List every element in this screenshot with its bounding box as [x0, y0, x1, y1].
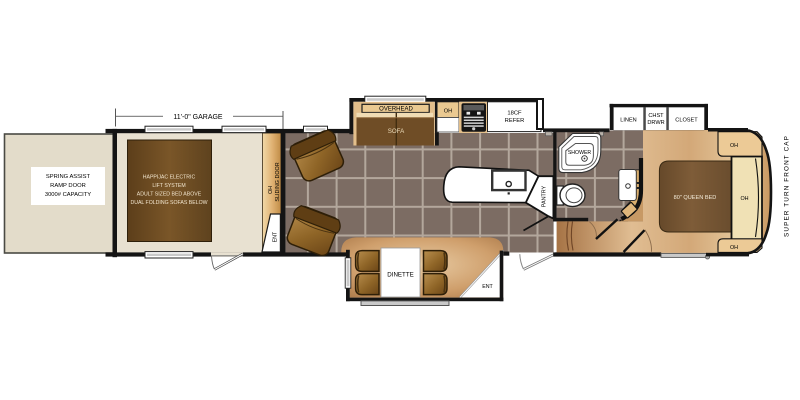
svg-text:OH: OH — [740, 196, 748, 202]
svg-text:OH: OH — [444, 109, 452, 115]
svg-text:RAMP DOOR: RAMP DOOR — [50, 183, 86, 189]
svg-text:SOFA: SOFA — [388, 128, 405, 135]
svg-text:18CF: 18CF — [507, 111, 522, 117]
svg-text:OH: OH — [730, 143, 738, 149]
svg-text:11'-0" GARAGE: 11'-0" GARAGE — [173, 114, 223, 121]
svg-text:SHOWER: SHOWER — [568, 150, 592, 156]
svg-text:LINEN: LINEN — [620, 118, 636, 124]
svg-text:SLIDING DOOR: SLIDING DOOR — [275, 162, 281, 201]
svg-text:CHST: CHST — [648, 113, 664, 119]
svg-text:DRWR: DRWR — [647, 120, 664, 126]
svg-text:DINETTE: DINETTE — [387, 272, 413, 279]
svg-text:SPRING ASSIST: SPRING ASSIST — [46, 174, 91, 180]
svg-text:OH: OH — [268, 186, 274, 194]
svg-text:DUAL FOLDING SOFAS BELOW: DUAL FOLDING SOFAS BELOW — [130, 200, 207, 206]
svg-text:HAPPIJAC ELECTRIC: HAPPIJAC ELECTRIC — [143, 175, 196, 181]
svg-text:OVERHEAD: OVERHEAD — [379, 107, 413, 113]
svg-text:3000# CAPACITY: 3000# CAPACITY — [45, 192, 91, 198]
svg-text:REFER: REFER — [505, 118, 525, 124]
svg-text:PANTRY: PANTRY — [542, 185, 548, 207]
svg-text:80" QUEEN BED: 80" QUEEN BED — [674, 195, 717, 201]
svg-text:OH: OH — [730, 245, 738, 251]
svg-text:LIFT SYSTEM: LIFT SYSTEM — [152, 183, 185, 189]
svg-text:ENT: ENT — [482, 284, 493, 290]
svg-text:ADULT SIZED BED ABOVE: ADULT SIZED BED ABOVE — [137, 192, 202, 198]
svg-text:SUPER TURN FRONT CAP: SUPER TURN FRONT CAP — [784, 135, 791, 237]
svg-text:CLOSET: CLOSET — [675, 118, 698, 124]
svg-text:ENT: ENT — [273, 231, 279, 242]
